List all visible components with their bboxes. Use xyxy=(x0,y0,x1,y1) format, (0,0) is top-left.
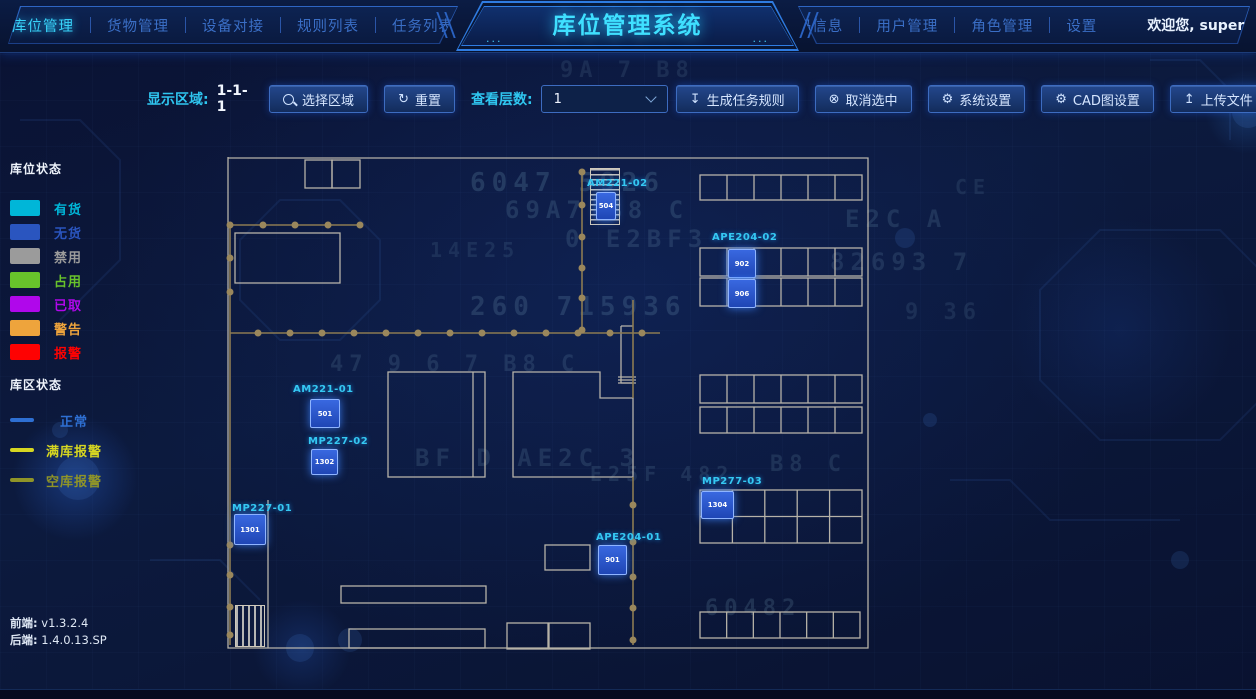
storage-grids xyxy=(700,175,862,638)
nav-right: 扫码信息用户管理角色管理设置 xyxy=(781,15,1097,36)
upload-icon: ↥ xyxy=(1184,92,1195,107)
legend-item: 正常 xyxy=(10,405,114,435)
legend-label: 占用 xyxy=(54,271,82,290)
unit-cell[interactable]: 1302 xyxy=(311,449,338,475)
legend-label: 空库报警 xyxy=(34,471,114,490)
legend-color-swatch xyxy=(10,320,40,336)
legend-item: 已取 xyxy=(10,292,82,316)
legend-line-swatch xyxy=(10,418,34,422)
layer-label: 查看层数: xyxy=(471,89,533,109)
legend-item: 满库报警 xyxy=(10,435,114,465)
legend-color-swatch xyxy=(10,296,40,312)
cad-settings-button[interactable]: ⚙ CAD图设置 xyxy=(1041,85,1154,113)
conveyor-nodes xyxy=(227,169,646,644)
title-dots-right: ··· xyxy=(753,35,770,48)
legend-item: 报警 xyxy=(10,340,82,364)
legend-label: 无货 xyxy=(54,223,82,242)
unit-label-mp227-02: MP227-02 xyxy=(308,436,368,447)
slot-status-legend: 有货无货禁用占用已取警告报警 xyxy=(10,196,82,364)
nav-item-1[interactable]: 库位管理 xyxy=(12,15,74,36)
reset-button[interactable]: ↻ 重置 xyxy=(384,85,455,113)
nav-separator xyxy=(1049,17,1050,33)
legend-label: 满库报警 xyxy=(34,441,114,460)
refresh-icon: ↻ xyxy=(398,92,409,107)
nav-item-3[interactable]: 设备对接 xyxy=(202,15,264,36)
nav-item-right-2[interactable]: 用户管理 xyxy=(876,15,938,36)
legend-label: 正常 xyxy=(34,411,114,430)
layer-select-value: 1 xyxy=(554,92,562,107)
warehouse-map-canvas[interactable]: AM221-02 504 APE204-02 902 906 AM221-01 … xyxy=(225,155,870,650)
nav-separator xyxy=(90,17,91,33)
display-area-label: 显示区域: xyxy=(147,89,209,109)
legend-item: 有货 xyxy=(10,196,82,220)
select-area-button[interactable]: 选择区域 xyxy=(269,85,368,113)
unit-cell[interactable]: 902 xyxy=(728,249,756,278)
legend-color-swatch xyxy=(10,200,40,216)
title-frame: ··· 库位管理系统 ··· xyxy=(456,1,799,51)
zone-status-legend-title: 库区状态 xyxy=(10,376,62,393)
nav-right-panel: 扫码信息用户管理角色管理设置 欢迎您, super ▼ xyxy=(798,6,1250,44)
legend-item: 空库报警 xyxy=(10,465,114,495)
unit-label-mp227-01: MP227-01 xyxy=(232,503,292,514)
unit-cell[interactable]: 501 xyxy=(310,399,340,428)
unit-label-am221-01: AM221-01 xyxy=(293,384,354,395)
frontend-version: v1.3.2.4 xyxy=(41,616,88,630)
legend-color-swatch xyxy=(10,344,40,360)
bottom-bar xyxy=(0,689,1256,699)
layer-select[interactable]: 1 xyxy=(541,85,668,113)
search-icon xyxy=(283,94,294,105)
zone-status-legend: 正常满库报警空库报警 xyxy=(10,405,114,495)
legend-label: 警告 xyxy=(54,319,82,338)
gear-icon: ⚙ xyxy=(1055,92,1067,107)
nav-item-right-3[interactable]: 角色管理 xyxy=(971,15,1033,36)
unit-label-mp277-03: MP277-03 xyxy=(702,476,762,487)
cancel-selection-button[interactable]: ⊗ 取消选中 xyxy=(815,85,912,113)
legend-item: 警告 xyxy=(10,316,82,340)
frontend-version-label: 前端: xyxy=(10,616,38,630)
unit-label-ape204-02: APE204-02 xyxy=(712,232,777,243)
nav-separator xyxy=(954,17,955,33)
nav-left-panel: 库位管理货物管理设备对接规则列表任务列表 xyxy=(8,6,458,44)
legend-line-swatch xyxy=(10,448,34,452)
legend-color-swatch xyxy=(10,224,40,240)
legend-item: 禁用 xyxy=(10,244,82,268)
toolbar: 显示区域: 1-1-1 选择区域 ↻ 重置 查看层数: 1 ↧ 生成任务规则 ⊗… xyxy=(147,85,1256,113)
nav-separator xyxy=(859,17,860,33)
nav-item-2[interactable]: 货物管理 xyxy=(107,15,169,36)
chevron-down-icon xyxy=(645,91,656,102)
slot-status-legend-title: 库位状态 xyxy=(10,160,62,177)
legend-label: 已取 xyxy=(54,295,82,314)
conveyor-paths xyxy=(230,170,660,645)
unit-cell[interactable]: 1304 xyxy=(701,491,734,519)
nav-separator xyxy=(185,17,186,33)
unit-cell[interactable]: 1301 xyxy=(234,514,266,545)
unit-label-am221-02: AM221-02 xyxy=(587,178,648,189)
top-bar: 库位管理货物管理设备对接规则列表任务列表 ··· 库位管理系统 ··· 扫码信息… xyxy=(0,0,1256,53)
unit-cell[interactable]: 901 xyxy=(598,545,627,575)
download-icon: ↧ xyxy=(690,92,701,107)
generate-task-rule-button[interactable]: ↧ 生成任务规则 xyxy=(676,85,799,113)
nav-item-right-4[interactable]: 设置 xyxy=(1066,15,1097,36)
legend-item: 占用 xyxy=(10,268,82,292)
page-title: 库位管理系统 xyxy=(456,1,799,51)
cancel-circle-icon: ⊗ xyxy=(829,92,840,107)
dock-stripes-icon xyxy=(235,605,265,647)
nav-separator xyxy=(280,17,281,33)
welcome-user[interactable]: 欢迎您, super xyxy=(1147,15,1244,35)
unit-label-ape204-01: APE204-01 xyxy=(596,532,661,543)
legend-color-swatch xyxy=(10,272,40,288)
gear-icon: ⚙ xyxy=(942,92,954,107)
legend-item: 无货 xyxy=(10,220,82,244)
backend-version: 1.4.0.13.SP xyxy=(41,633,106,647)
legend-label: 禁用 xyxy=(54,247,82,266)
legend-label: 报警 xyxy=(54,343,82,362)
legend-label: 有货 xyxy=(54,199,82,218)
unit-cell[interactable]: 504 xyxy=(596,192,616,220)
unit-cell[interactable]: 906 xyxy=(728,279,756,308)
upload-file-button[interactable]: ↥ 上传文件 xyxy=(1170,85,1256,113)
backend-version-label: 后端: xyxy=(10,633,38,647)
nav-left: 库位管理货物管理设备对接规则列表任务列表 xyxy=(12,15,454,36)
version-info: 前端: v1.3.2.4 后端: 1.4.0.13.SP xyxy=(10,615,107,649)
nav-item-4[interactable]: 规则列表 xyxy=(297,15,359,36)
nav-separator xyxy=(375,17,376,33)
legend-line-swatch xyxy=(10,478,34,482)
app-root: 6047 592669A7 B8 C0 E2BF314E25260 715936… xyxy=(0,0,1256,699)
system-settings-button[interactable]: ⚙ 系统设置 xyxy=(928,85,1026,113)
legend-color-swatch xyxy=(10,248,40,264)
display-area-value: 1-1-1 xyxy=(217,83,251,115)
